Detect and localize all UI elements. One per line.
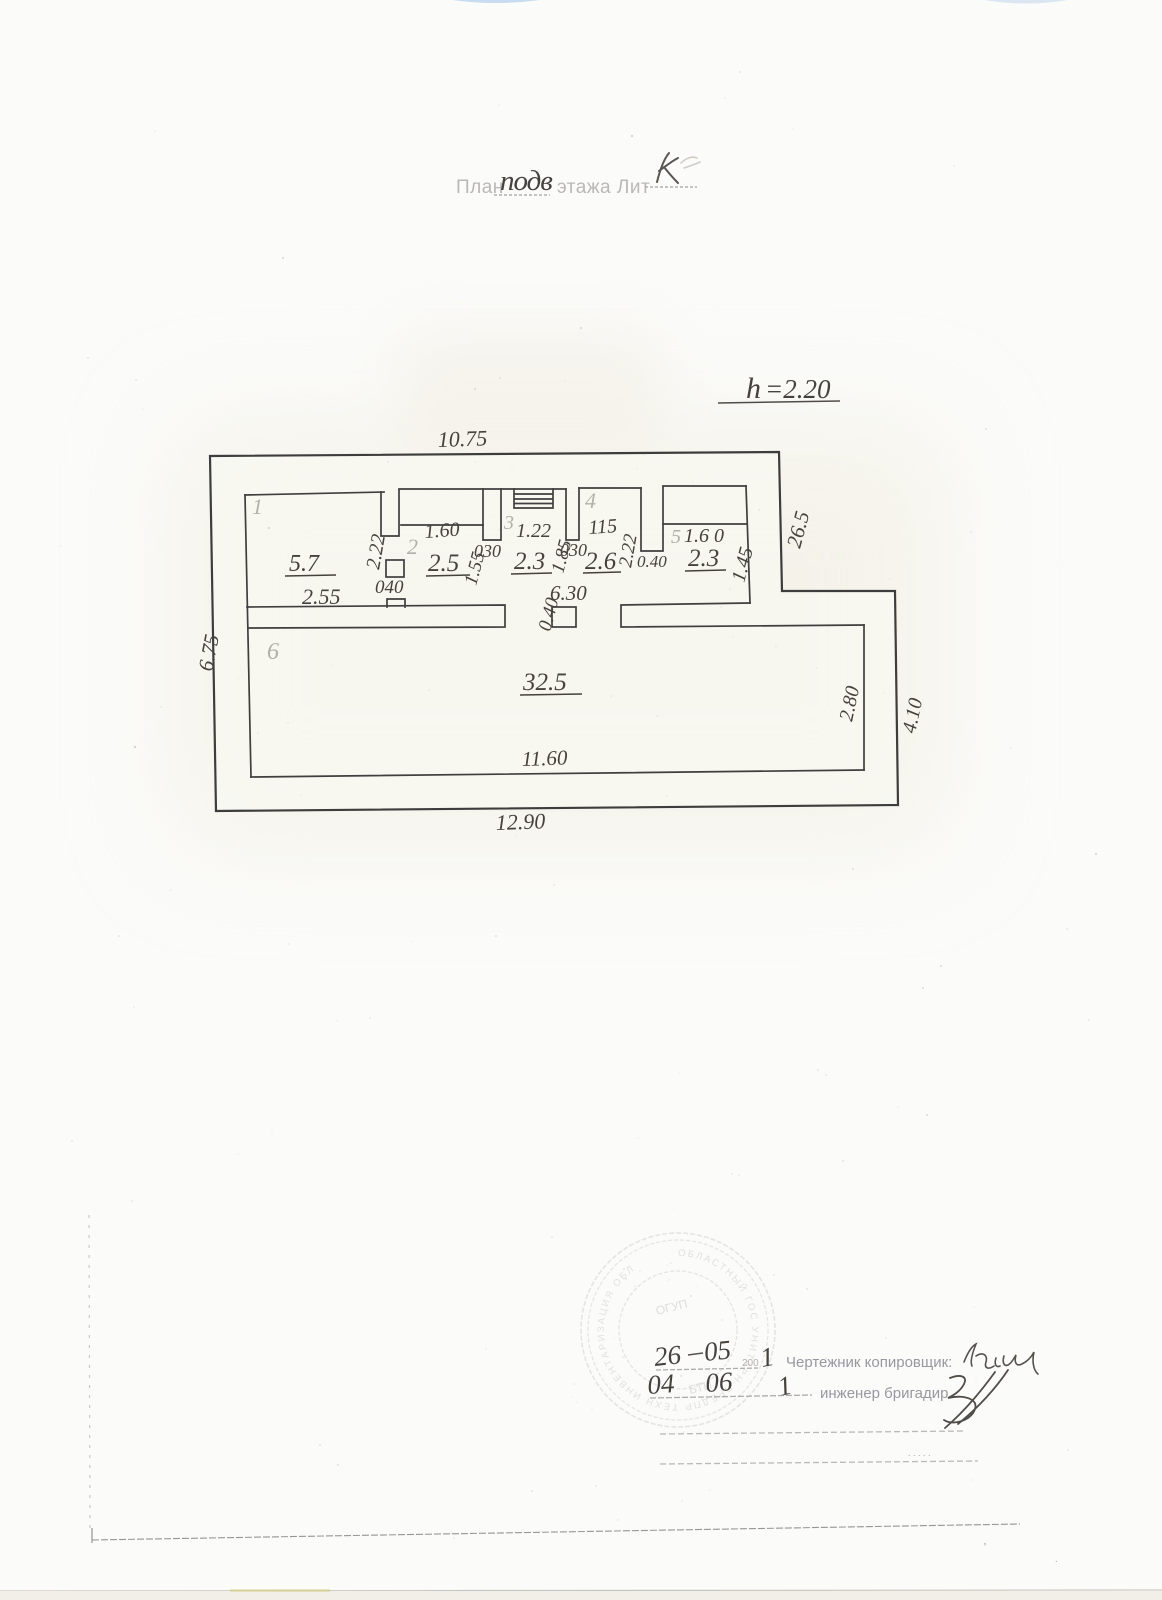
svg-text:h: h (746, 372, 761, 405)
svg-text:10.75: 10.75 (437, 425, 487, 452)
svg-text:Чертежник копировщик:: Чертежник копировщик: (786, 1354, 952, 1371)
svg-text:1.22: 1.22 (516, 520, 551, 542)
svg-text:5: 5 (671, 526, 681, 548)
svg-text:2: 2 (407, 534, 418, 559)
svg-text:подв: подв (500, 165, 553, 197)
svg-text:12.90: 12.90 (495, 808, 545, 835)
svg-text:3: 3 (503, 512, 514, 534)
svg-text:4: 4 (585, 488, 596, 513)
svg-text:=2.20: =2.20 (765, 374, 831, 404)
svg-text:2.6: 2.6 (585, 548, 617, 575)
svg-text:2.3: 2.3 (688, 545, 719, 572)
svg-text:1.6 0: 1.6 0 (684, 525, 724, 547)
svg-text:1.60: 1.60 (424, 519, 460, 543)
svg-text:. . . . .: . . . . . (908, 1448, 931, 1458)
svg-text:': ' (984, 1541, 986, 1553)
svg-text:06: 06 (704, 1366, 734, 1398)
svg-text:2.5: 2.5 (428, 550, 459, 577)
svg-text:инженер бригадир: инженер бригадир (820, 1385, 948, 1402)
svg-text:.: . (1055, 1553, 1058, 1565)
svg-text:030: 030 (560, 540, 587, 560)
svg-text:этажа Лит: этажа Лит (557, 177, 650, 198)
svg-text:5.7: 5.7 (289, 551, 320, 577)
svg-text:11.60: 11.60 (521, 745, 568, 771)
svg-text:26: 26 (652, 1339, 682, 1372)
svg-text:2.55: 2.55 (302, 584, 341, 609)
svg-text:1: 1 (252, 494, 263, 519)
svg-text:05: 05 (702, 1334, 732, 1367)
svg-text:04: 04 (646, 1368, 675, 1400)
svg-text:2.3: 2.3 (514, 548, 545, 575)
svg-text:200: 200 (742, 1358, 759, 1369)
svg-text:0.40: 0.40 (637, 552, 667, 571)
svg-text:6: 6 (267, 639, 279, 665)
svg-text:115: 115 (588, 515, 618, 539)
svg-text:030: 030 (474, 541, 501, 561)
svg-text:040: 040 (375, 577, 404, 598)
svg-text:32.5: 32.5 (522, 669, 567, 696)
